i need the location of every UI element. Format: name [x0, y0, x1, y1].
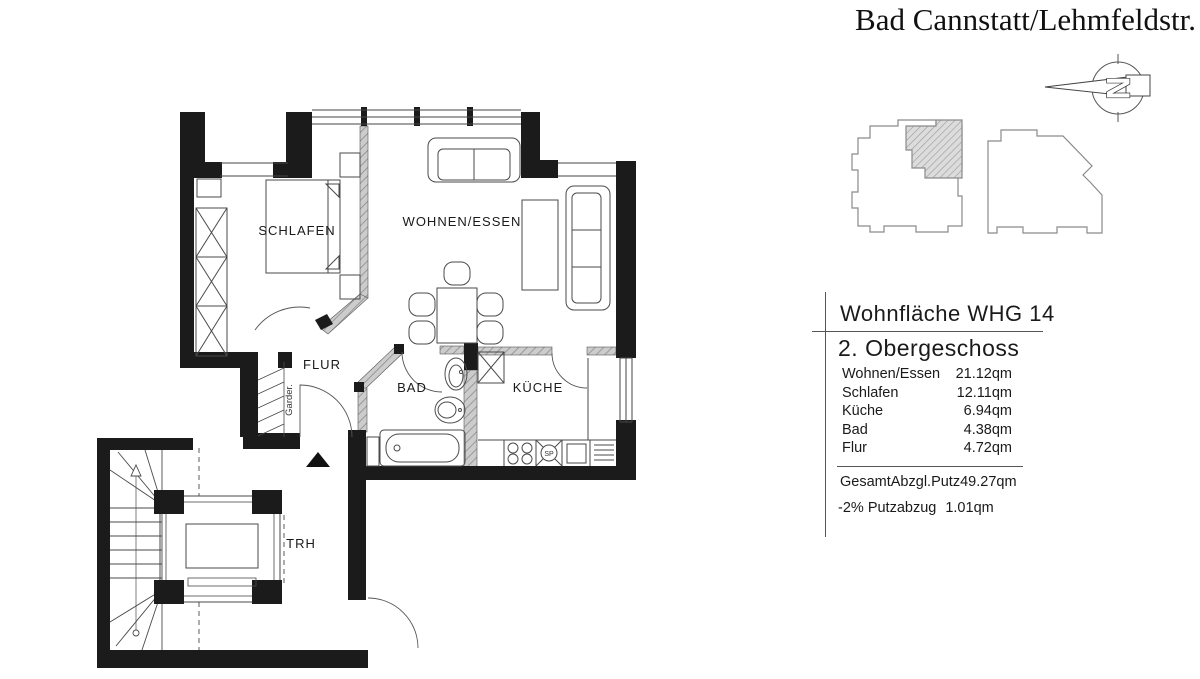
key-plans: [852, 120, 1102, 233]
row-value: 4.38qm: [964, 421, 1012, 440]
room-label-schlafen: SCHLAFEN: [258, 223, 335, 238]
schlafen-door-arc: [255, 307, 310, 330]
total-row: Gesamt Abzgl.Putz 49.27qm: [840, 474, 1014, 490]
furniture: SP: [196, 138, 616, 466]
panel-divider-total: [837, 466, 1023, 467]
kitchen-sink: SP: [536, 440, 562, 466]
sofa-three-seat: [566, 186, 610, 310]
deduction-row: -2% Putzabzug 1.01qm: [838, 500, 994, 516]
room-label-flur: FLUR: [303, 357, 341, 372]
room-label-bad: BAD: [397, 380, 427, 395]
row-value: 4.72qm: [964, 439, 1012, 458]
walk-arrow: [131, 465, 141, 476]
entry-door-arc: [300, 385, 352, 437]
floor-plan-page: Bad Cannstatt/Lehmfeldstr.: [0, 0, 1200, 679]
sofa-two-seat: [428, 138, 520, 182]
row-label: Küche: [842, 402, 883, 421]
dining-set: [409, 262, 503, 344]
table-row: Wohnen/Essen 21.12qm: [842, 365, 1012, 384]
deduction-label: -2% Putzabzug: [838, 500, 936, 516]
row-label: Bad: [842, 421, 868, 440]
total-value: 49.27qm: [960, 474, 1016, 490]
garderobe-hatch: [258, 362, 284, 437]
stove: [508, 443, 532, 464]
kitchen: SP: [478, 352, 616, 466]
trh-door-arc: [368, 598, 418, 648]
panel-title: Wohnfläche WHG 14: [840, 301, 1055, 327]
deduction-value: 1.01qm: [945, 500, 993, 516]
room-label-trh: TRH: [286, 536, 316, 551]
entrance-marker: [306, 452, 330, 467]
floor-plan-drawing: SP: [0, 0, 1200, 679]
dishwasher: [594, 445, 614, 460]
total-sublabel: Abzgl.Putz: [891, 474, 960, 490]
panel-subtitle: 2. Obergeschoss: [838, 335, 1019, 362]
coffee-table: [522, 200, 558, 290]
garderobe-label: Garder.: [284, 384, 295, 416]
panel-border: [825, 292, 826, 537]
north-letter: N: [1100, 76, 1136, 99]
elevator: [154, 490, 282, 604]
north-arrow: N: [1045, 54, 1150, 122]
windows: [220, 110, 632, 422]
room-label-wohnen-essen: WOHNEN/ESSEN: [403, 214, 522, 229]
table-row: Flur 4.72qm: [842, 439, 1012, 458]
row-label: Flur: [842, 439, 867, 458]
wardrobe: [196, 208, 227, 356]
table-row: Küche 6.94qm: [842, 402, 1012, 421]
oven: [567, 444, 586, 463]
panel-divider-top: [812, 331, 1043, 332]
bath-cabinet: [367, 437, 379, 466]
room-label-kueche: KÜCHE: [513, 380, 564, 395]
total-label: Gesamt: [840, 474, 891, 490]
toilet: [435, 397, 465, 423]
key-plan-building-right: [988, 130, 1102, 233]
row-value: 12.11qm: [957, 384, 1012, 403]
row-value: 6.94qm: [964, 402, 1012, 421]
row-label: Wohnen/Essen: [842, 365, 940, 384]
room-labels: SCHLAFEN WOHNEN/ESSEN FLUR BAD KÜCHE TRH…: [258, 214, 563, 551]
row-value: 21.12qm: [956, 365, 1012, 384]
shaft-box: [197, 179, 221, 197]
table-row: Bad 4.38qm: [842, 421, 1012, 440]
bathtub: [380, 430, 465, 466]
sink-label: SP: [544, 451, 554, 458]
table-row: Schlafen 12.11qm: [842, 384, 1012, 403]
row-label: Schlafen: [842, 384, 898, 403]
room-area-table: Wohnen/Essen 21.12qm Schlafen 12.11qm Kü…: [842, 365, 1012, 458]
